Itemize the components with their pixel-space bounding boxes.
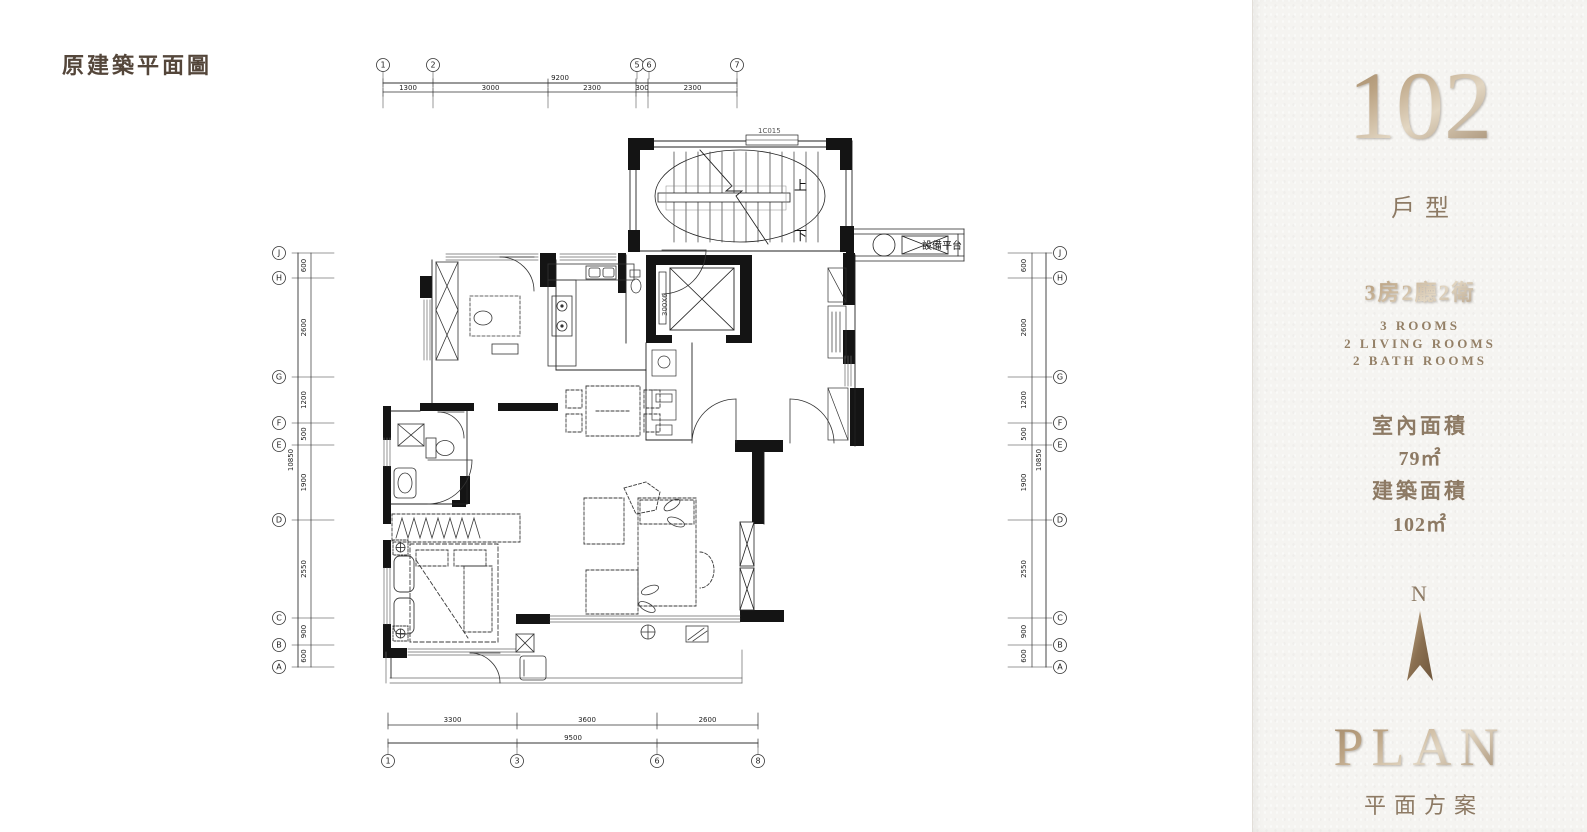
dim-label: 3600 xyxy=(578,716,596,724)
layout-en: 3 ROOMS 2 LIVING ROOMS 2 BATH ROOMS xyxy=(1253,317,1587,370)
grid-bubble-right-A-label: A xyxy=(1057,663,1063,672)
layout-en-line2: 2 LIVING ROOMS xyxy=(1253,335,1587,353)
dim-label: 1900 xyxy=(300,474,308,492)
grid-bubble-left-D-label: D xyxy=(276,516,282,525)
plan-title-cn: 平面方案 xyxy=(1253,788,1587,820)
grid-bubble-bottom-1-label: 1 xyxy=(385,757,390,766)
interior-area-label: 室內面積 xyxy=(1253,410,1587,444)
dim-label: 2600 xyxy=(699,716,717,724)
layout-cn: 3房2廳2衛 xyxy=(1253,275,1587,307)
hatched-columns xyxy=(740,522,754,610)
dim-label: 1300 xyxy=(399,84,417,92)
grid-bubble-right-D-label: D xyxy=(1057,516,1063,525)
grid-bubble-top-7-label: 7 xyxy=(734,61,739,70)
dim-label: 2550 xyxy=(1020,560,1028,578)
floor-plan-drawing: 上 下 1C015 300X6 xyxy=(250,40,1080,780)
grid-bubble-left-G-label: G xyxy=(276,373,282,382)
north-arrow-icon xyxy=(1403,607,1437,685)
dim-label: 10850 xyxy=(287,449,295,471)
partitions xyxy=(391,255,855,678)
dim-label: 1200 xyxy=(300,391,308,409)
dim-label: 2600 xyxy=(1020,319,1028,337)
plan-canvas: 原建築平面圖 xyxy=(0,0,1253,832)
dim-label: 300 xyxy=(635,84,648,92)
compass: N xyxy=(1253,581,1587,690)
window-tag: 1C015 xyxy=(758,127,781,135)
dim-label: 500 xyxy=(1020,427,1028,440)
dim-label: 2300 xyxy=(684,84,702,92)
grid-bubble-top-1-label: 1 xyxy=(380,61,385,70)
duct-strip xyxy=(630,270,641,293)
plan-title-en: PLAN xyxy=(1253,716,1587,778)
stairwell xyxy=(630,135,852,251)
grid-bubble-left-B-label: B xyxy=(276,641,282,650)
living-room-accents xyxy=(637,497,708,642)
grid-bubble-right-E-label: E xyxy=(1057,441,1062,450)
dim-label: 3000 xyxy=(482,84,500,92)
dim-label: 3300 xyxy=(444,716,462,724)
shaft-tag: 300X6 xyxy=(661,293,669,316)
dim-label: 600 xyxy=(1020,259,1028,272)
floor-plan-page: 原建築平面圖 xyxy=(0,0,1587,832)
dim-label: 2550 xyxy=(300,560,308,578)
grid-bubble-right-B-label: B xyxy=(1057,641,1063,650)
equipment-platform-label: 設備平台 xyxy=(922,239,962,252)
grid-bubble-bottom-6-label: 6 xyxy=(654,757,659,766)
dim-label: 600 xyxy=(1020,649,1028,662)
page-title: 原建築平面圖 xyxy=(62,48,212,80)
unit-type-label: 戶型 xyxy=(1253,188,1587,223)
construction-area-label: 建築面積 xyxy=(1253,475,1587,509)
interior-area-value: 79㎡ xyxy=(1253,443,1587,475)
dim-label: 500 xyxy=(300,427,308,440)
dimension-grid: 9200130030002300300230012567330036002600… xyxy=(273,59,1067,768)
grid-bubble-right-G-label: G xyxy=(1057,373,1063,382)
grid-bubble-left-E-label: E xyxy=(276,441,281,450)
dim-label: 9200 xyxy=(551,74,569,82)
grid-bubble-right-H-label: H xyxy=(1057,274,1063,283)
dim-label: 2600 xyxy=(300,319,308,337)
walls xyxy=(383,253,864,658)
construction-area-value: 102㎡ xyxy=(1253,509,1587,541)
dim-label: 600 xyxy=(300,259,308,272)
dim-label: 900 xyxy=(1020,625,1028,638)
dim-label: 9500 xyxy=(564,734,582,742)
grid-bubble-top-5-label: 5 xyxy=(634,61,639,70)
unit-number: 102 xyxy=(1253,58,1587,154)
grid-bubble-left-J-label: J xyxy=(277,249,280,258)
utility-strip xyxy=(652,350,676,435)
stair-down-label: 下 xyxy=(794,229,807,244)
master-bedroom xyxy=(392,514,520,642)
dim-label: 600 xyxy=(300,649,308,662)
grid-bubble-left-H-label: H xyxy=(276,274,282,283)
dim-label: 1900 xyxy=(1020,474,1028,492)
grid-bubble-bottom-3-label: 3 xyxy=(514,757,519,766)
grid-bubble-left-A-label: A xyxy=(276,663,282,672)
grid-bubble-left-F-label: F xyxy=(277,419,282,428)
grid-bubble-top-2-label: 2 xyxy=(430,61,435,70)
layout-en-line1: 3 ROOMS xyxy=(1253,317,1587,335)
north-label: N xyxy=(1253,581,1587,607)
info-sidebar: 102 戶型 3房2廳2衛 3 ROOMS 2 LIVING ROOMS 2 B… xyxy=(1252,0,1587,832)
grid-bubble-right-J-label: J xyxy=(1058,249,1061,258)
balcony xyxy=(516,634,546,680)
bedroom2 xyxy=(436,262,520,360)
layout-en-line3: 2 BATH ROOMS xyxy=(1253,352,1587,370)
grid-bubble-right-F-label: F xyxy=(1058,419,1063,428)
bathroom xyxy=(394,424,454,498)
dim-label: 1200 xyxy=(1020,391,1028,409)
stair-up-label: 上 xyxy=(794,179,807,194)
area-block: 室內面積 79㎡ 建築面積 102㎡ xyxy=(1253,410,1587,541)
dim-label: 900 xyxy=(300,625,308,638)
grid-bubble-left-C-label: C xyxy=(276,614,282,623)
grid-bubble-top-6-label: 6 xyxy=(646,61,651,70)
dim-label: 10850 xyxy=(1035,449,1043,471)
dim-label: 2300 xyxy=(583,84,601,92)
grid-bubble-bottom-8-label: 8 xyxy=(755,757,760,766)
grid-bubble-right-C-label: C xyxy=(1057,614,1063,623)
elevator-shaft: 300X6 xyxy=(646,255,752,343)
